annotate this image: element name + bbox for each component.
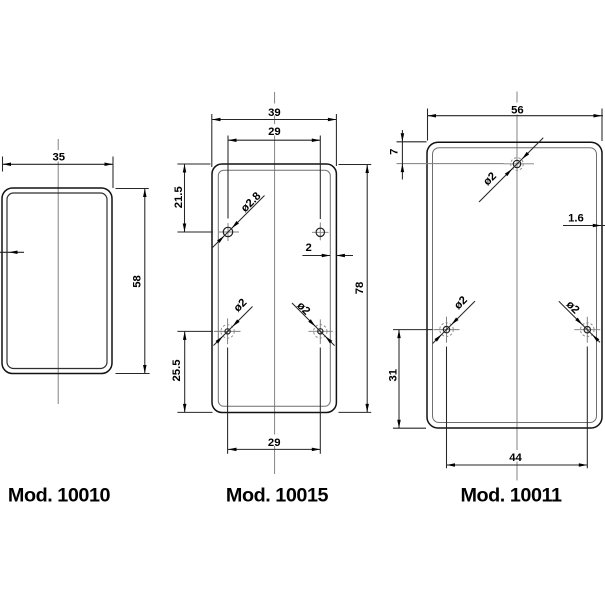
- svg-text:ø2: ø2: [294, 300, 312, 318]
- svg-text:ø2.8: ø2.8: [239, 190, 263, 214]
- svg-text:44: 44: [509, 452, 522, 464]
- svg-text:29: 29: [268, 126, 281, 138]
- svg-text:25.5: 25.5: [171, 360, 183, 382]
- svg-text:29: 29: [268, 437, 281, 449]
- svg-text:ø2: ø2: [481, 170, 499, 188]
- svg-text:78: 78: [354, 282, 366, 295]
- svg-text:39: 39: [268, 107, 281, 119]
- svg-text:56: 56: [511, 104, 524, 116]
- svg-text:2: 2: [306, 242, 312, 254]
- svg-text:1.6: 1.6: [568, 213, 584, 225]
- svg-text:7: 7: [389, 149, 401, 155]
- svg-text:Mod. 10011: Mod. 10011: [460, 485, 561, 507]
- svg-text:31: 31: [388, 369, 400, 382]
- svg-text:58: 58: [132, 275, 144, 288]
- svg-text:Mod. 10015: Mod. 10015: [226, 485, 329, 507]
- svg-text:ø2: ø2: [564, 299, 582, 317]
- svg-text:35: 35: [53, 151, 66, 163]
- svg-text:21.5: 21.5: [173, 186, 185, 208]
- svg-text:Mod. 10010: Mod. 10010: [8, 485, 111, 507]
